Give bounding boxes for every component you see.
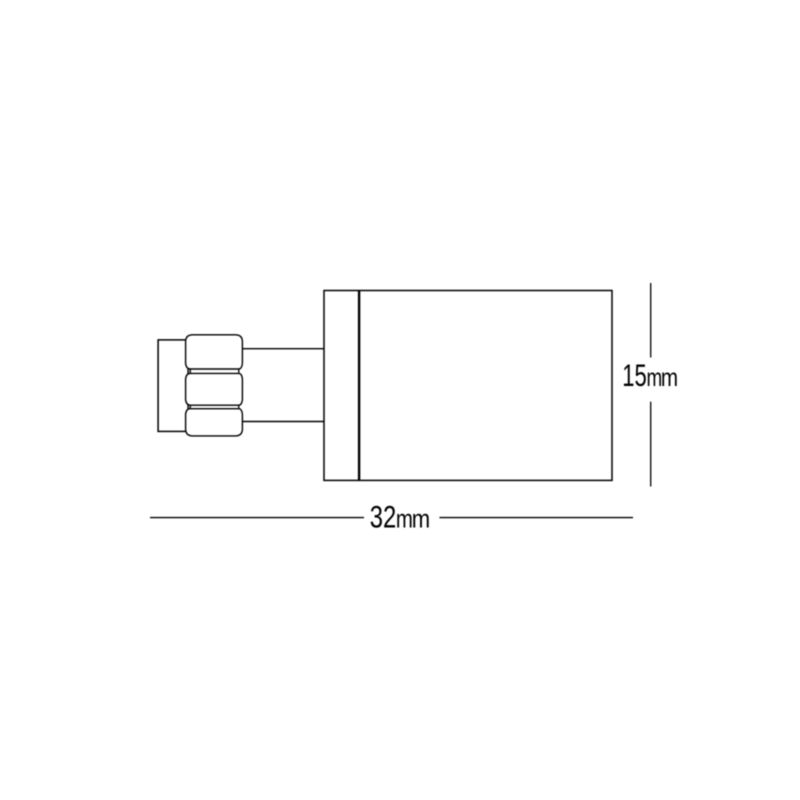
svg-text:m: m xyxy=(647,364,663,392)
svg-text:32: 32 xyxy=(370,499,397,535)
svg-text:15: 15 xyxy=(622,357,647,393)
svg-text:m: m xyxy=(396,504,413,534)
svg-text:m: m xyxy=(412,504,430,534)
svg-text:m: m xyxy=(661,364,678,392)
